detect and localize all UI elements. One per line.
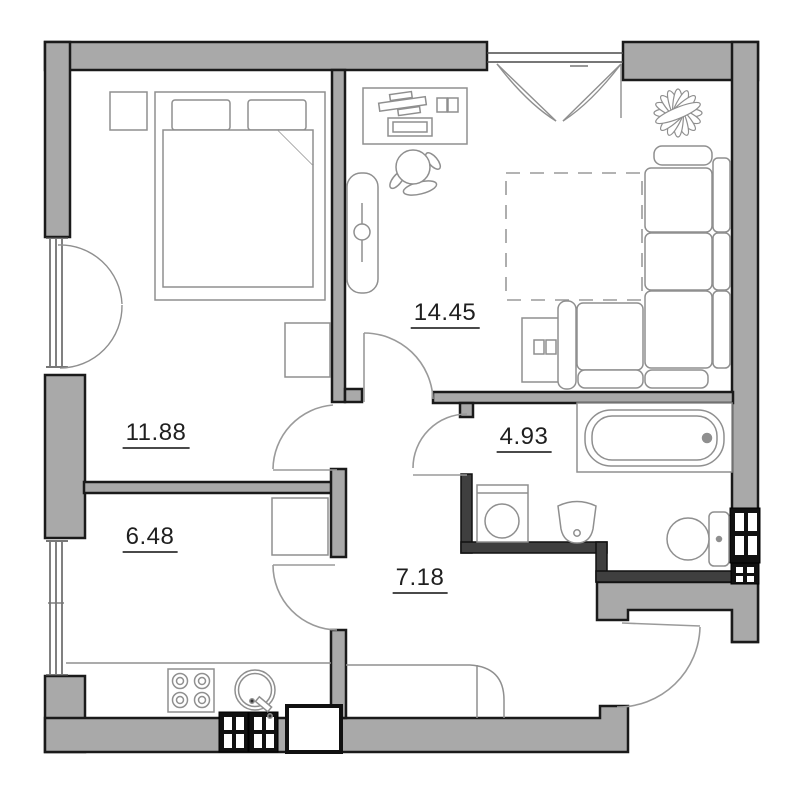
hallway-cabinet-symbol: [346, 665, 504, 718]
dresser-symbol: [285, 323, 330, 377]
living-room-door: [364, 333, 433, 402]
corner-sofa-symbol: [558, 146, 730, 389]
wall-bath-south-a: [461, 542, 607, 553]
pillow-symbol: [172, 100, 230, 130]
ventilation-shaft-right: [730, 508, 760, 584]
hallway-fixtures: [346, 665, 504, 718]
monitor-symbol-inner: [393, 122, 427, 132]
pillow-symbol: [248, 100, 306, 130]
desk-accessory: [437, 98, 447, 112]
plant-symbol: [654, 89, 703, 138]
floor-plan-drawing: [0, 0, 794, 800]
floor-plan: 11.88 14.45 4.93 6.48 7.18: [0, 0, 794, 800]
bottom-wall-hatch-box: [287, 706, 341, 752]
wall-left-middle: [45, 375, 85, 538]
bedroom-door: [273, 405, 337, 470]
room-label-bedroom: 11.88: [123, 420, 190, 449]
nightstand-symbol: [110, 92, 147, 130]
kitchen-sink-symbol: [235, 670, 275, 718]
balcony-door: [487, 53, 623, 121]
wall-entrance-block: [597, 582, 758, 642]
wall-bedroom-living: [332, 70, 345, 402]
room-label-bathroom: 4.93: [497, 424, 552, 453]
wardrobe-symbol: [347, 173, 378, 293]
kitchen-cabinet-symbol: [272, 498, 328, 555]
bathtub-symbol: [577, 403, 732, 472]
wall-foot-living-door: [345, 389, 362, 402]
wall-top-left: [45, 42, 487, 70]
kitchen-fixtures: [66, 498, 331, 718]
toilet-symbol: [667, 512, 729, 566]
kitchen-window: [46, 541, 68, 675]
office-chair-symbol: [387, 150, 443, 198]
washbasin-symbol: [558, 502, 596, 544]
room-label-living-room: 14.45: [411, 300, 480, 329]
bathroom-door: [413, 414, 467, 475]
stove-symbol: [168, 669, 214, 712]
living-room-furniture: [347, 88, 730, 389]
wall-living-bath: [433, 392, 733, 403]
wall-left-upper: [45, 42, 70, 237]
room-label-hallway: 7.18: [393, 565, 448, 594]
kitchen-door: [273, 565, 337, 630]
wall-bedroom-kitchen: [84, 482, 333, 493]
desk-accessory: [448, 98, 458, 112]
entrance-door: [617, 623, 700, 707]
blanket-symbol: [163, 130, 313, 287]
wall-bath-south-b: [596, 571, 733, 582]
bedroom-window: [46, 238, 122, 368]
wall-hall-kitchen-upper: [331, 469, 346, 557]
washing-machine-symbol: [477, 485, 528, 542]
room-label-kitchen: 6.48: [123, 524, 178, 553]
wall-bath-west: [461, 474, 472, 553]
bedroom-furniture: [110, 92, 330, 377]
rug-outline: [506, 173, 642, 300]
